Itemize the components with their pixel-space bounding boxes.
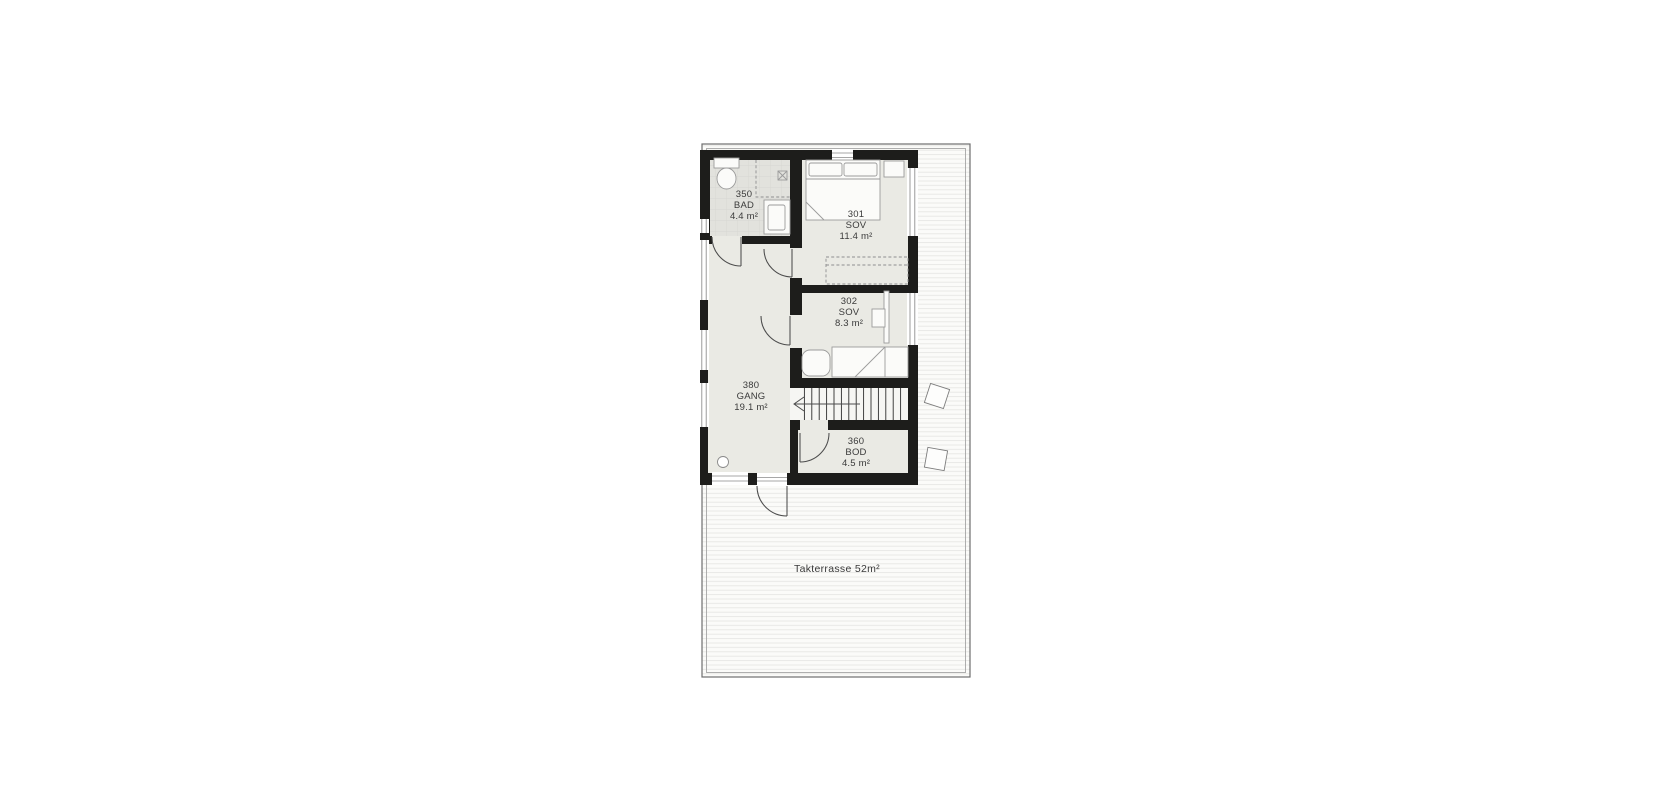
svg-text:360: 360 [848,436,864,447]
bod-door-opening [800,420,828,430]
svg-text:BAD: BAD [734,200,754,211]
bed-301 [806,160,880,220]
floor-plan-svg: 350 BAD 4.4 m² 301 SOV 11.4 m² 302 SOV 8… [0,0,1670,800]
svg-text:350: 350 [736,189,752,200]
window-gang-left-upper [699,240,709,300]
window-gang-left-middle [699,330,709,370]
ceiling-light-icon [718,457,729,468]
svg-text:301: 301 [848,209,864,220]
svg-text:GANG: GANG [737,391,766,402]
svg-text:4.4 m²: 4.4 m² [730,211,758,222]
nightstand-301 [884,161,904,177]
svg-text:BOD: BOD [845,447,866,458]
window-sov302-right [907,293,918,345]
sov302-door-opening [790,315,802,348]
floor-plan-page: 350 BAD 4.4 m² 301 SOV 11.4 m² 302 SOV 8… [0,0,1670,800]
bad-door-opening [712,236,742,245]
roof-hatch-icon [924,447,947,470]
window-top [832,149,853,161]
window-gang-bottom [712,472,748,485]
window-sov301-right [907,168,918,236]
svg-text:19.1 m²: 19.1 m² [734,402,768,413]
window-bad-left [699,219,709,233]
bed-302 [802,347,908,377]
svg-text:380: 380 [743,380,759,391]
terrace-door-opening [757,473,787,486]
terrace-label: Takterrasse 52m² [794,563,880,575]
svg-text:4.5 m²: 4.5 m² [842,458,870,469]
svg-text:8.3 m²: 8.3 m² [835,318,863,329]
svg-text:SOV: SOV [839,307,860,318]
svg-text:11.4 m²: 11.4 m² [840,231,873,242]
svg-text:SOV: SOV [846,220,867,231]
sink-vanity [764,200,790,234]
room-gang-floor [708,244,790,473]
window-gang-left-lower [699,383,709,427]
svg-text:302: 302 [841,296,857,307]
